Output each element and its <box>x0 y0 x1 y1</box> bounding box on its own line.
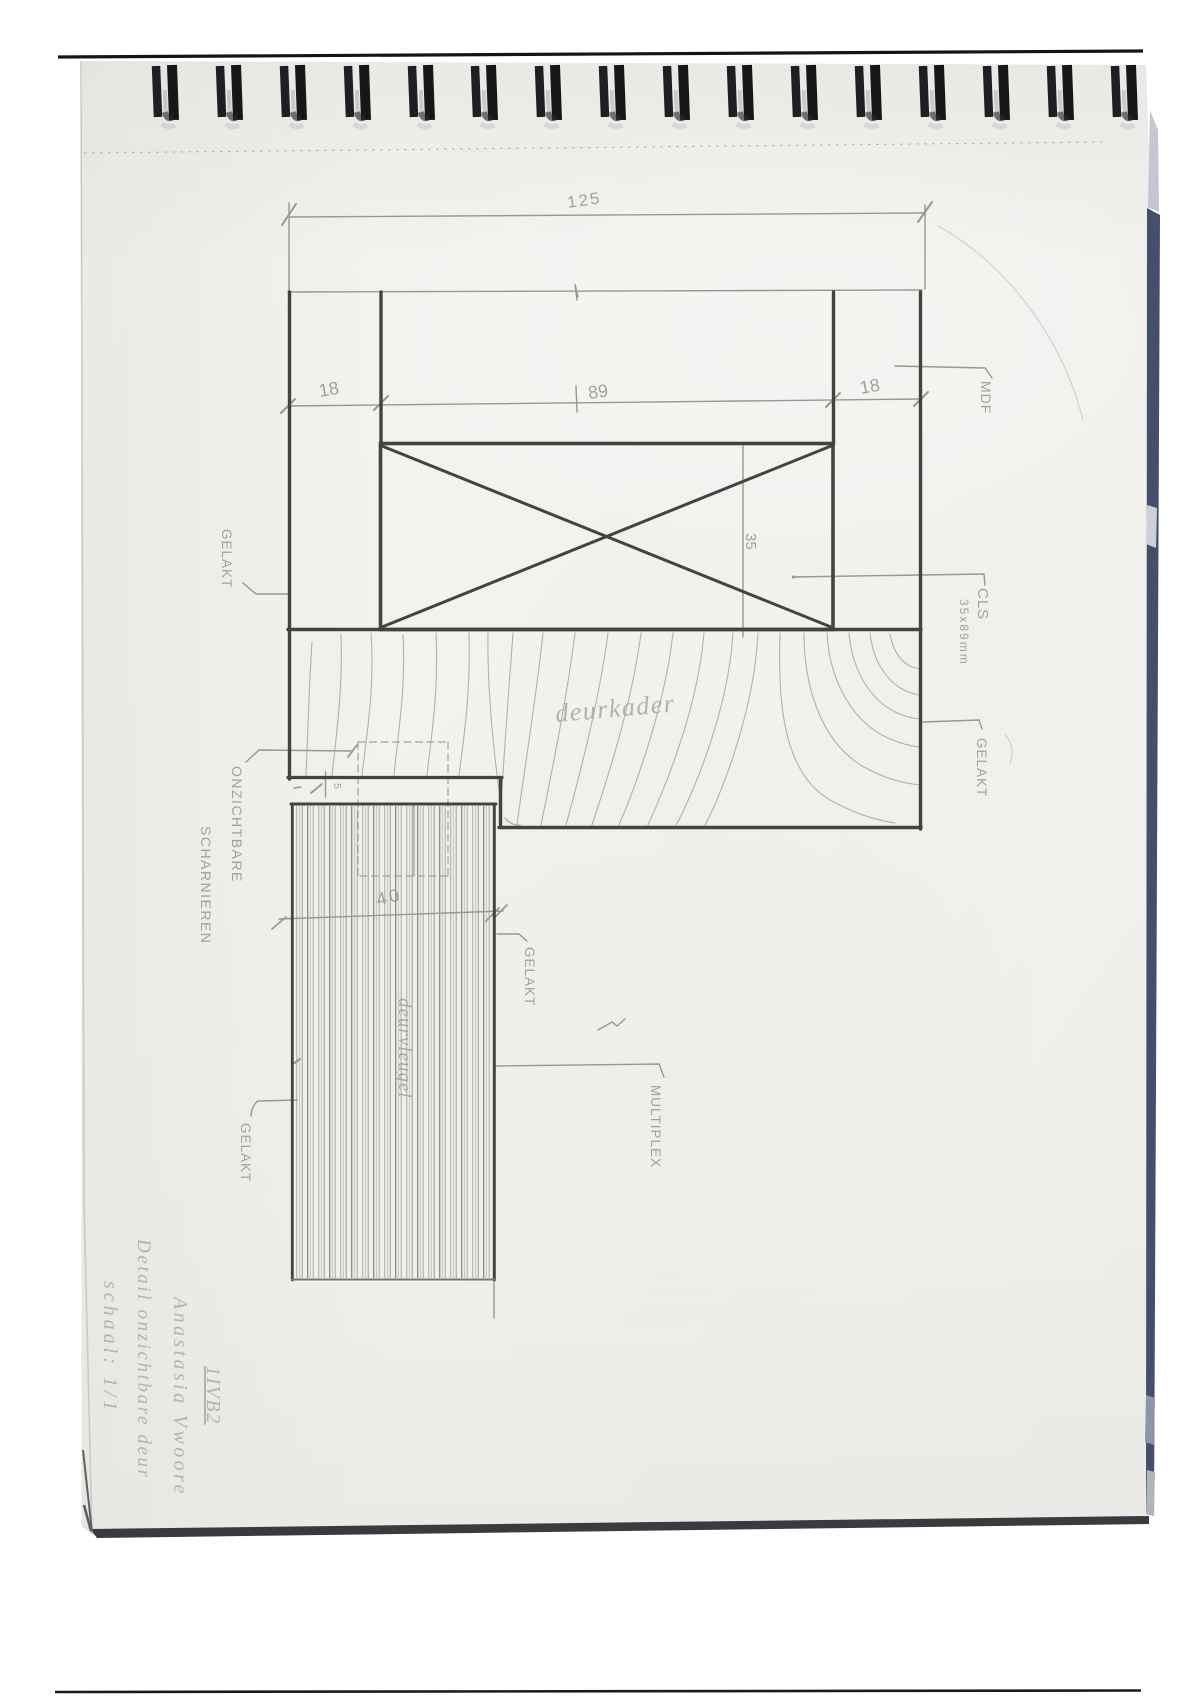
svg-text:18: 18 <box>858 375 881 398</box>
svg-text:GELAKT: GELAKT <box>219 529 234 588</box>
svg-text:1IVB2: 1IVB2 <box>202 1366 224 1425</box>
svg-text:5: 5 <box>331 783 343 789</box>
svg-text:MULTIPLEX: MULTIPLEX <box>648 1085 663 1168</box>
svg-text:schaal: 1/1: schaal: 1/1 <box>99 1281 121 1414</box>
svg-text:GELAKT: GELAKT <box>974 738 989 797</box>
svg-text:18: 18 <box>317 378 340 401</box>
svg-text:89: 89 <box>587 380 610 403</box>
svg-text:MDF: MDF <box>978 381 994 414</box>
svg-text:ONZICHTBARE: ONZICHTBARE <box>229 766 245 883</box>
svg-text:GELAKT: GELAKT <box>522 947 537 1006</box>
svg-text:GELAKT: GELAKT <box>238 1123 253 1182</box>
svg-text:deurvleugel: deurvleugel <box>394 998 415 1099</box>
svg-text:Detail onzichtbare deur: Detail onzichtbare deur <box>133 1238 154 1480</box>
svg-text:CLS: CLS <box>974 588 991 620</box>
svg-text:35x89mm: 35x89mm <box>957 599 971 666</box>
svg-text:35: 35 <box>742 533 759 550</box>
svg-text:SCHARNIEREN: SCHARNIEREN <box>198 826 214 944</box>
svg-text:Anastasia Vwoore: Anastasia Vwoore <box>169 1295 191 1497</box>
